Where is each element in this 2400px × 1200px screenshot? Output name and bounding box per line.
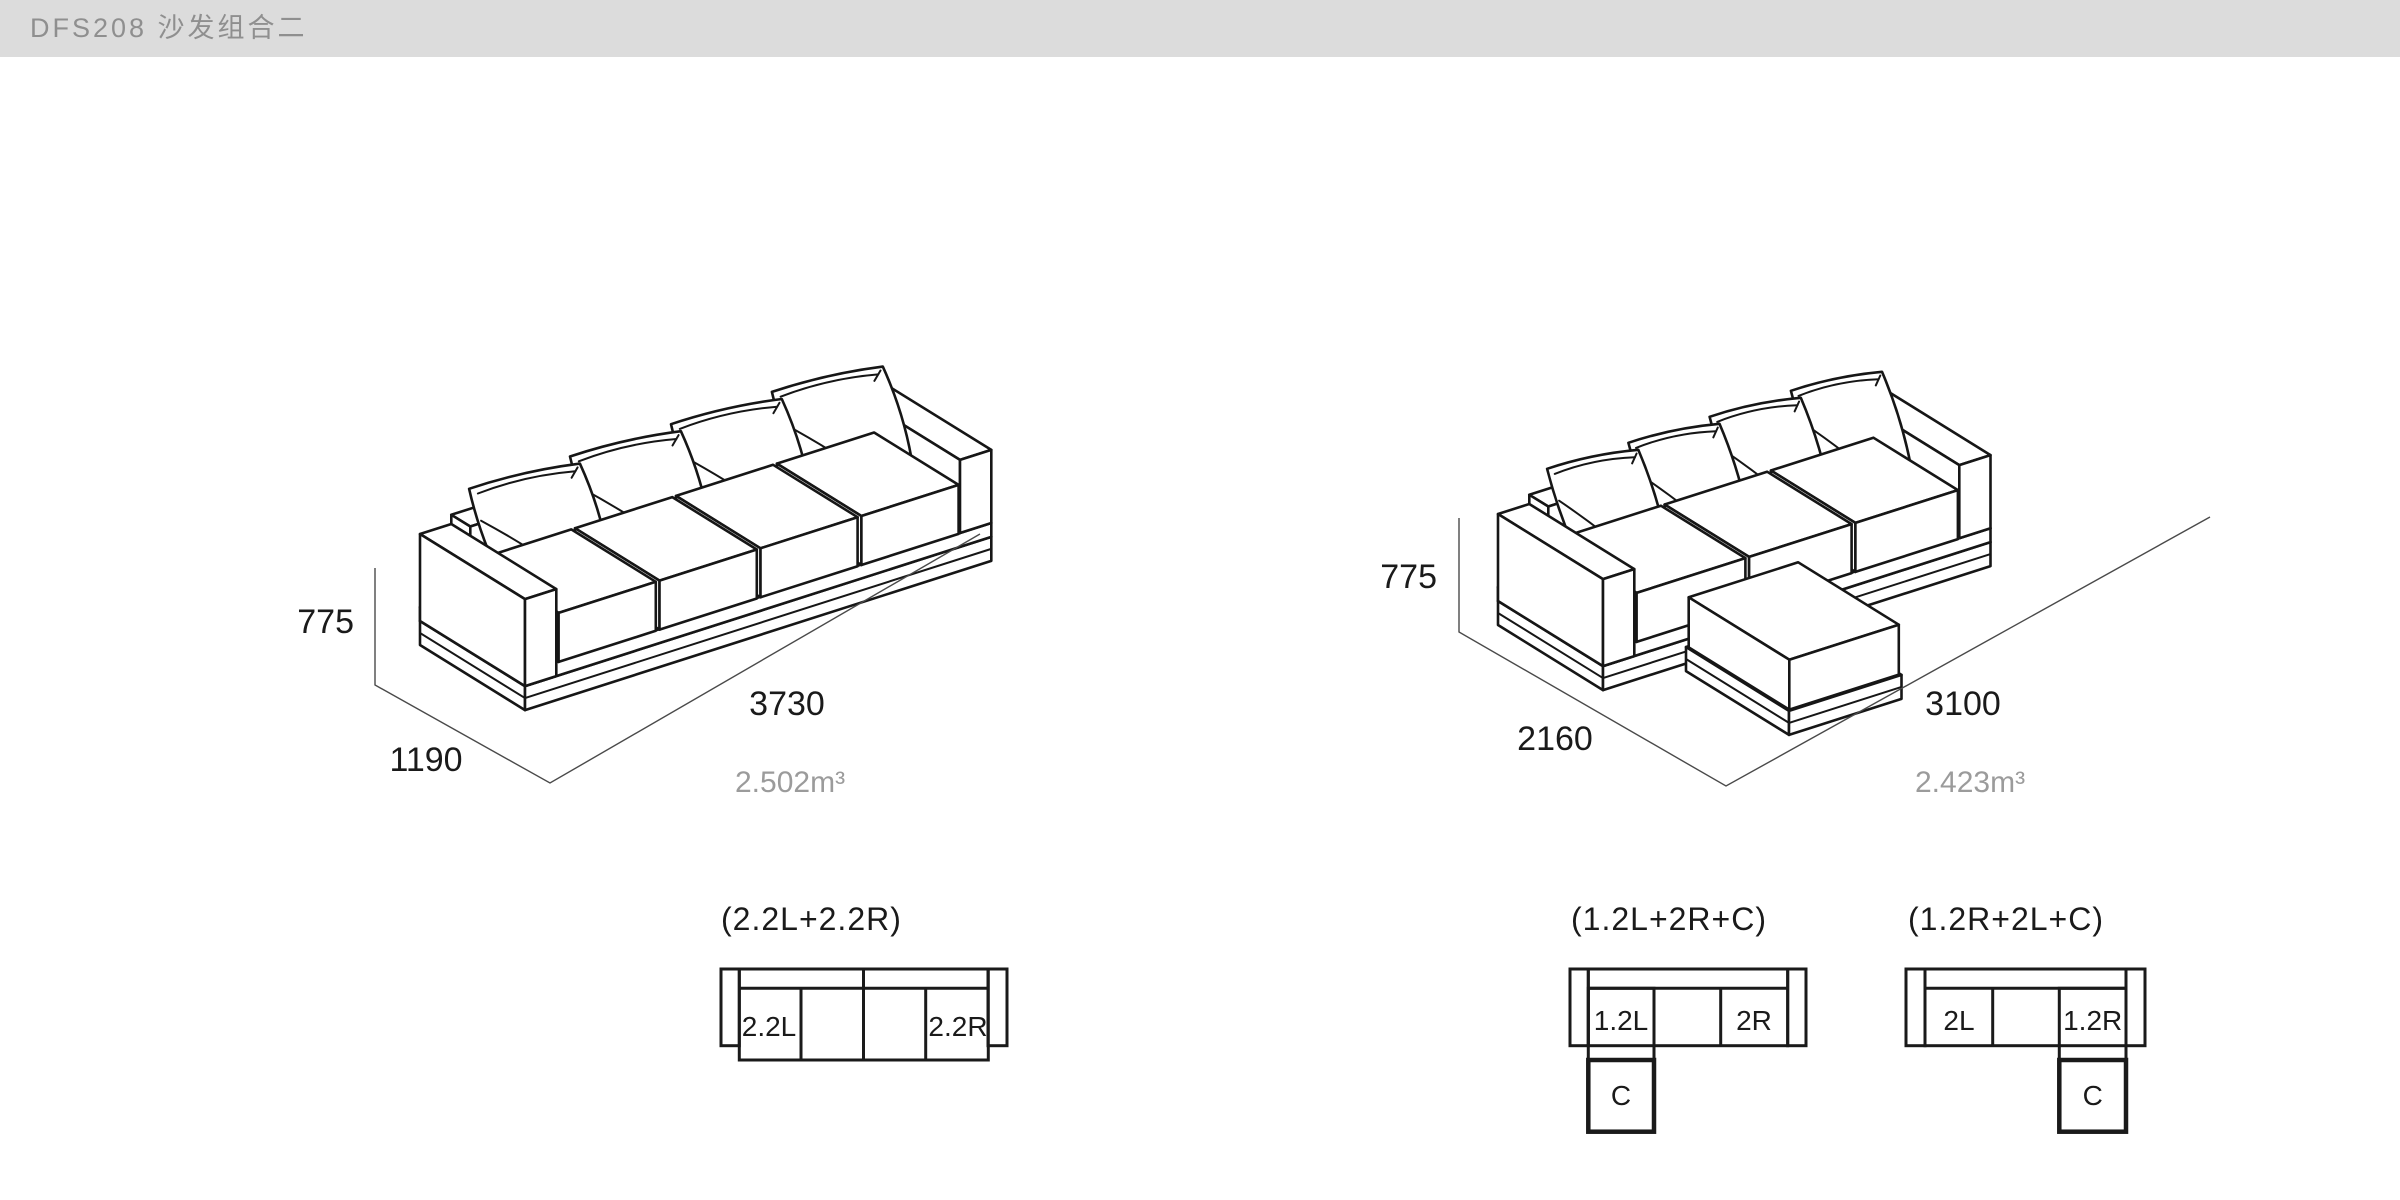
plan-diagram-3: (1.2R+2L+C)2L1.2RC [1906, 901, 2145, 1132]
plan-title: (2.2L+2.2R) [721, 901, 902, 937]
plan-cell-label: C [1611, 1080, 1631, 1111]
plan-diagram-1: (2.2L+2.2R)2.2L2.2R [721, 901, 1007, 1060]
plan-box [988, 969, 1007, 1046]
volume-label: 2.423m³ [1915, 766, 2025, 799]
sofa-face [960, 450, 991, 533]
length-dimension: 3100 [1925, 685, 2001, 723]
plan-cell-label: 1.2L [1594, 1005, 1649, 1036]
plan-cell-label: 2.2L [742, 1011, 797, 1042]
plan-box [1788, 969, 1806, 1046]
plan-diagram-2: (1.2L+2R+C)1.2L2RC [1570, 901, 1806, 1132]
sofa-face [1959, 455, 1990, 538]
sofa-face [1603, 569, 1634, 666]
plan-cell-label: C [2083, 1080, 2103, 1111]
plan-cell-label: 2R [1736, 1005, 1772, 1036]
plan-title: (1.2L+2R+C) [1571, 901, 1767, 937]
plan-cell-label: 2.2R [928, 1011, 987, 1042]
plan-box [721, 969, 739, 1046]
plan-box [1906, 969, 1925, 1046]
depth-dimension: 2160 [1517, 720, 1593, 758]
depth-dimension: 1190 [389, 741, 462, 779]
height-dimension: 775 [297, 603, 354, 641]
straight-sofa-drawing [420, 367, 991, 710]
sofa-face [525, 589, 556, 686]
page: DFS208 沙发组合二 775 1190 3730 2.502m³ 775 2… [0, 0, 2400, 1200]
plan-diagrams: (2.2L+2.2R)2.2L2.2R(1.2L+2R+C)1.2L2RC(1.… [721, 901, 2145, 1132]
plan-box [2126, 969, 2145, 1046]
plan-cell-label: 1.2R [2063, 1005, 2122, 1036]
plan-title: (1.2R+2L+C) [1908, 901, 2104, 937]
plan-box [1570, 969, 1588, 1046]
volume-label: 2.502m³ [735, 766, 845, 799]
height-dimension: 775 [1380, 558, 1437, 596]
figure-canvas: 775 1190 3730 2.502m³ 775 2160 3100 2.42… [0, 0, 2400, 1200]
length-dimension: 3730 [749, 685, 825, 723]
plan-cell-label: 2L [1943, 1005, 1974, 1036]
